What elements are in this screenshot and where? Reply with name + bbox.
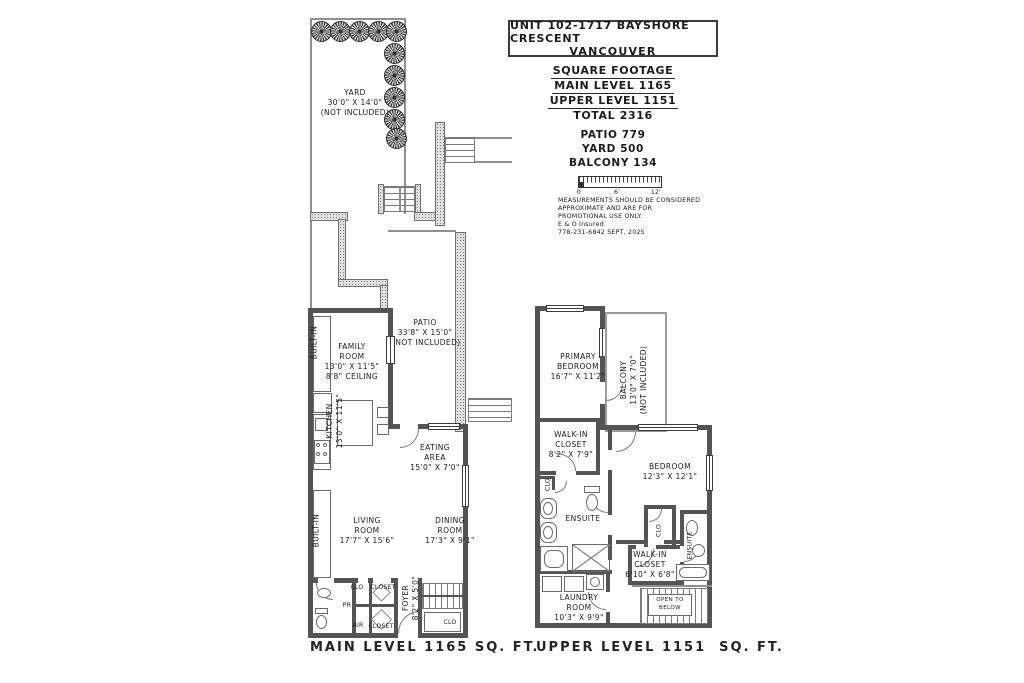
wall — [535, 306, 540, 628]
tree-icon — [386, 128, 407, 149]
label-powder-room: PR — [333, 602, 361, 610]
balcony-area: BALCONY 134 — [508, 157, 718, 169]
wall — [608, 470, 612, 515]
room-label-kitchen: KITCHEN 13'0" X 11'5" — [325, 391, 347, 451]
room-label-dining-room: DINING ROOM 17'3" X 9'1" — [418, 516, 482, 546]
label-closet: CLOSET — [361, 623, 401, 631]
toilet-tank — [315, 608, 328, 614]
window — [386, 336, 395, 364]
wall — [680, 510, 684, 546]
stool — [377, 407, 389, 418]
walkway-line — [475, 137, 512, 139]
disclaimer-line-1: MEASUREMENTS SHOULD BE CONSIDERED — [558, 197, 700, 205]
scale-bar — [578, 176, 662, 188]
wall — [420, 633, 468, 638]
yard-area: YARD 500 — [508, 143, 718, 155]
burner — [316, 452, 320, 456]
burner — [323, 452, 327, 456]
address-line-1: UNIT 102-1717 BAYSHORE CRESCENT — [510, 19, 716, 45]
retaining-wall — [380, 285, 388, 310]
wall — [606, 574, 610, 592]
label-clo: CLO — [656, 520, 665, 542]
walkway-line — [475, 161, 512, 163]
entry-steps — [468, 398, 512, 422]
room-label-patio: PATIO 33'8" X 15'0" (NOT INCLUDED) — [392, 318, 458, 348]
wall — [656, 545, 680, 549]
main-level-caption: MAIN LEVEL 1165 SQ. FT. — [310, 640, 510, 655]
toilet — [316, 615, 327, 629]
tree-icon — [386, 21, 407, 42]
room-label-yard: YARD 30'0" X 14'0" (NOT INCLUDED) — [310, 88, 400, 118]
wall — [388, 424, 400, 429]
room-label-living-room: LIVING ROOM 17'7" X 15'6" — [335, 516, 399, 546]
label-open-to-below: OPEN TO BELOW — [648, 596, 692, 613]
upper-level-caption: UPPER LEVEL 1151 SQ. FT. — [536, 640, 736, 655]
wall — [540, 418, 600, 422]
room-label-walk-in-closet-2: WALK-IN CLOSET 6'10" X 6'8" — [622, 550, 678, 580]
wall — [576, 471, 600, 475]
wall — [608, 430, 612, 450]
retaining-wall — [415, 184, 421, 214]
label-ensuite: ENSUITE — [553, 514, 613, 524]
label-clo: CLO — [432, 619, 468, 627]
label-closet: CLOSET — [363, 584, 403, 592]
toilet-tank — [584, 486, 600, 493]
wall — [616, 540, 646, 544]
sink — [317, 588, 331, 598]
address-line-2: VANCOUVER — [569, 45, 656, 58]
steps-rail — [399, 186, 401, 212]
built-in-label: BUILT-IN — [310, 317, 319, 369]
door-arc — [555, 481, 567, 493]
room-label-family-room: FAMILY ROOM 13'0" X 11'5" 8'8" CEILING — [320, 342, 384, 383]
door-arc — [616, 432, 636, 452]
sqft-upper: UPPER LEVEL 1151 — [508, 94, 718, 107]
window — [638, 424, 698, 431]
shower — [572, 544, 610, 572]
label-ensuite: ENSUITE — [687, 526, 696, 566]
window — [546, 305, 584, 312]
room-label-bedroom: BEDROOM 12'3" X 12'1" — [630, 462, 710, 482]
wall — [680, 510, 708, 514]
tree-icon — [349, 21, 370, 42]
patio-area: PATIO 779 — [508, 129, 718, 141]
side-steps — [445, 137, 475, 163]
wall — [672, 505, 676, 547]
floor-plan-sheet: UNIT 102-1717 BAYSHORE CRESCENT VANCOUVE… — [0, 0, 1024, 683]
dryer — [564, 576, 584, 592]
room-label-primary-bedroom: PRIMARY BEDROOM 16'7" X 11'2" — [546, 352, 610, 382]
stair-rail — [422, 595, 463, 597]
disclaimer-line-4: E & O Insured — [558, 221, 604, 229]
window — [428, 423, 460, 430]
disclaimer-line-2: APPROXIMATE AND ARE FOR — [558, 205, 652, 213]
washer — [542, 576, 562, 592]
sink-basin — [543, 502, 553, 515]
sqft-main: MAIN LEVEL 1165 — [508, 79, 718, 92]
tree-icon — [384, 43, 405, 64]
wall — [308, 308, 393, 313]
bathtub-basin — [544, 550, 564, 568]
tree-icon — [311, 21, 332, 42]
yard-fence-top — [310, 18, 406, 20]
property-line-left — [310, 18, 312, 310]
sqft-total: TOTAL 2316 — [508, 109, 718, 122]
label-clo: CLO — [545, 474, 554, 496]
room-label-eating-area: EATING AREA 15'0" X 7'0" — [405, 443, 465, 473]
burner — [316, 443, 320, 447]
retaining-wall — [338, 219, 346, 285]
sqft-header: SQUARE FOOTAGE — [508, 64, 718, 77]
retaining-wall — [435, 122, 445, 226]
wall — [644, 505, 648, 547]
room-label-laundry-room: LAUNDRY ROOM 10'3" X 9'9" — [547, 593, 611, 623]
sink-basin — [543, 526, 553, 539]
toilet — [586, 494, 598, 511]
scale-bar-origin — [579, 182, 584, 187]
tree-icon — [330, 21, 351, 42]
contact-line: 778-231-6842 SEPT, 2025 — [558, 229, 645, 237]
stair-edge — [632, 585, 712, 587]
patio-edge — [388, 230, 456, 232]
room-label-foyer: FOYER 8'2" X 5'0" — [401, 574, 421, 622]
stool — [377, 424, 389, 435]
laundry-sink-basin — [590, 577, 600, 587]
bathtub-basin — [679, 567, 707, 578]
room-label-walk-in-closet-1: WALK-IN CLOSET 8'2" X 7'9" — [539, 430, 603, 460]
built-in-label: BUILT-IN — [312, 505, 321, 557]
disclaimer-line-3: PROMOTIONAL USE ONLY. — [558, 213, 642, 221]
tree-icon — [384, 65, 405, 86]
room-label-balcony: BALCONY 13'0" X 7'0" (NOT INCLUDED) — [619, 335, 653, 425]
title-box: UNIT 102-1717 BAYSHORE CRESCENT VANCOUVE… — [508, 20, 718, 57]
